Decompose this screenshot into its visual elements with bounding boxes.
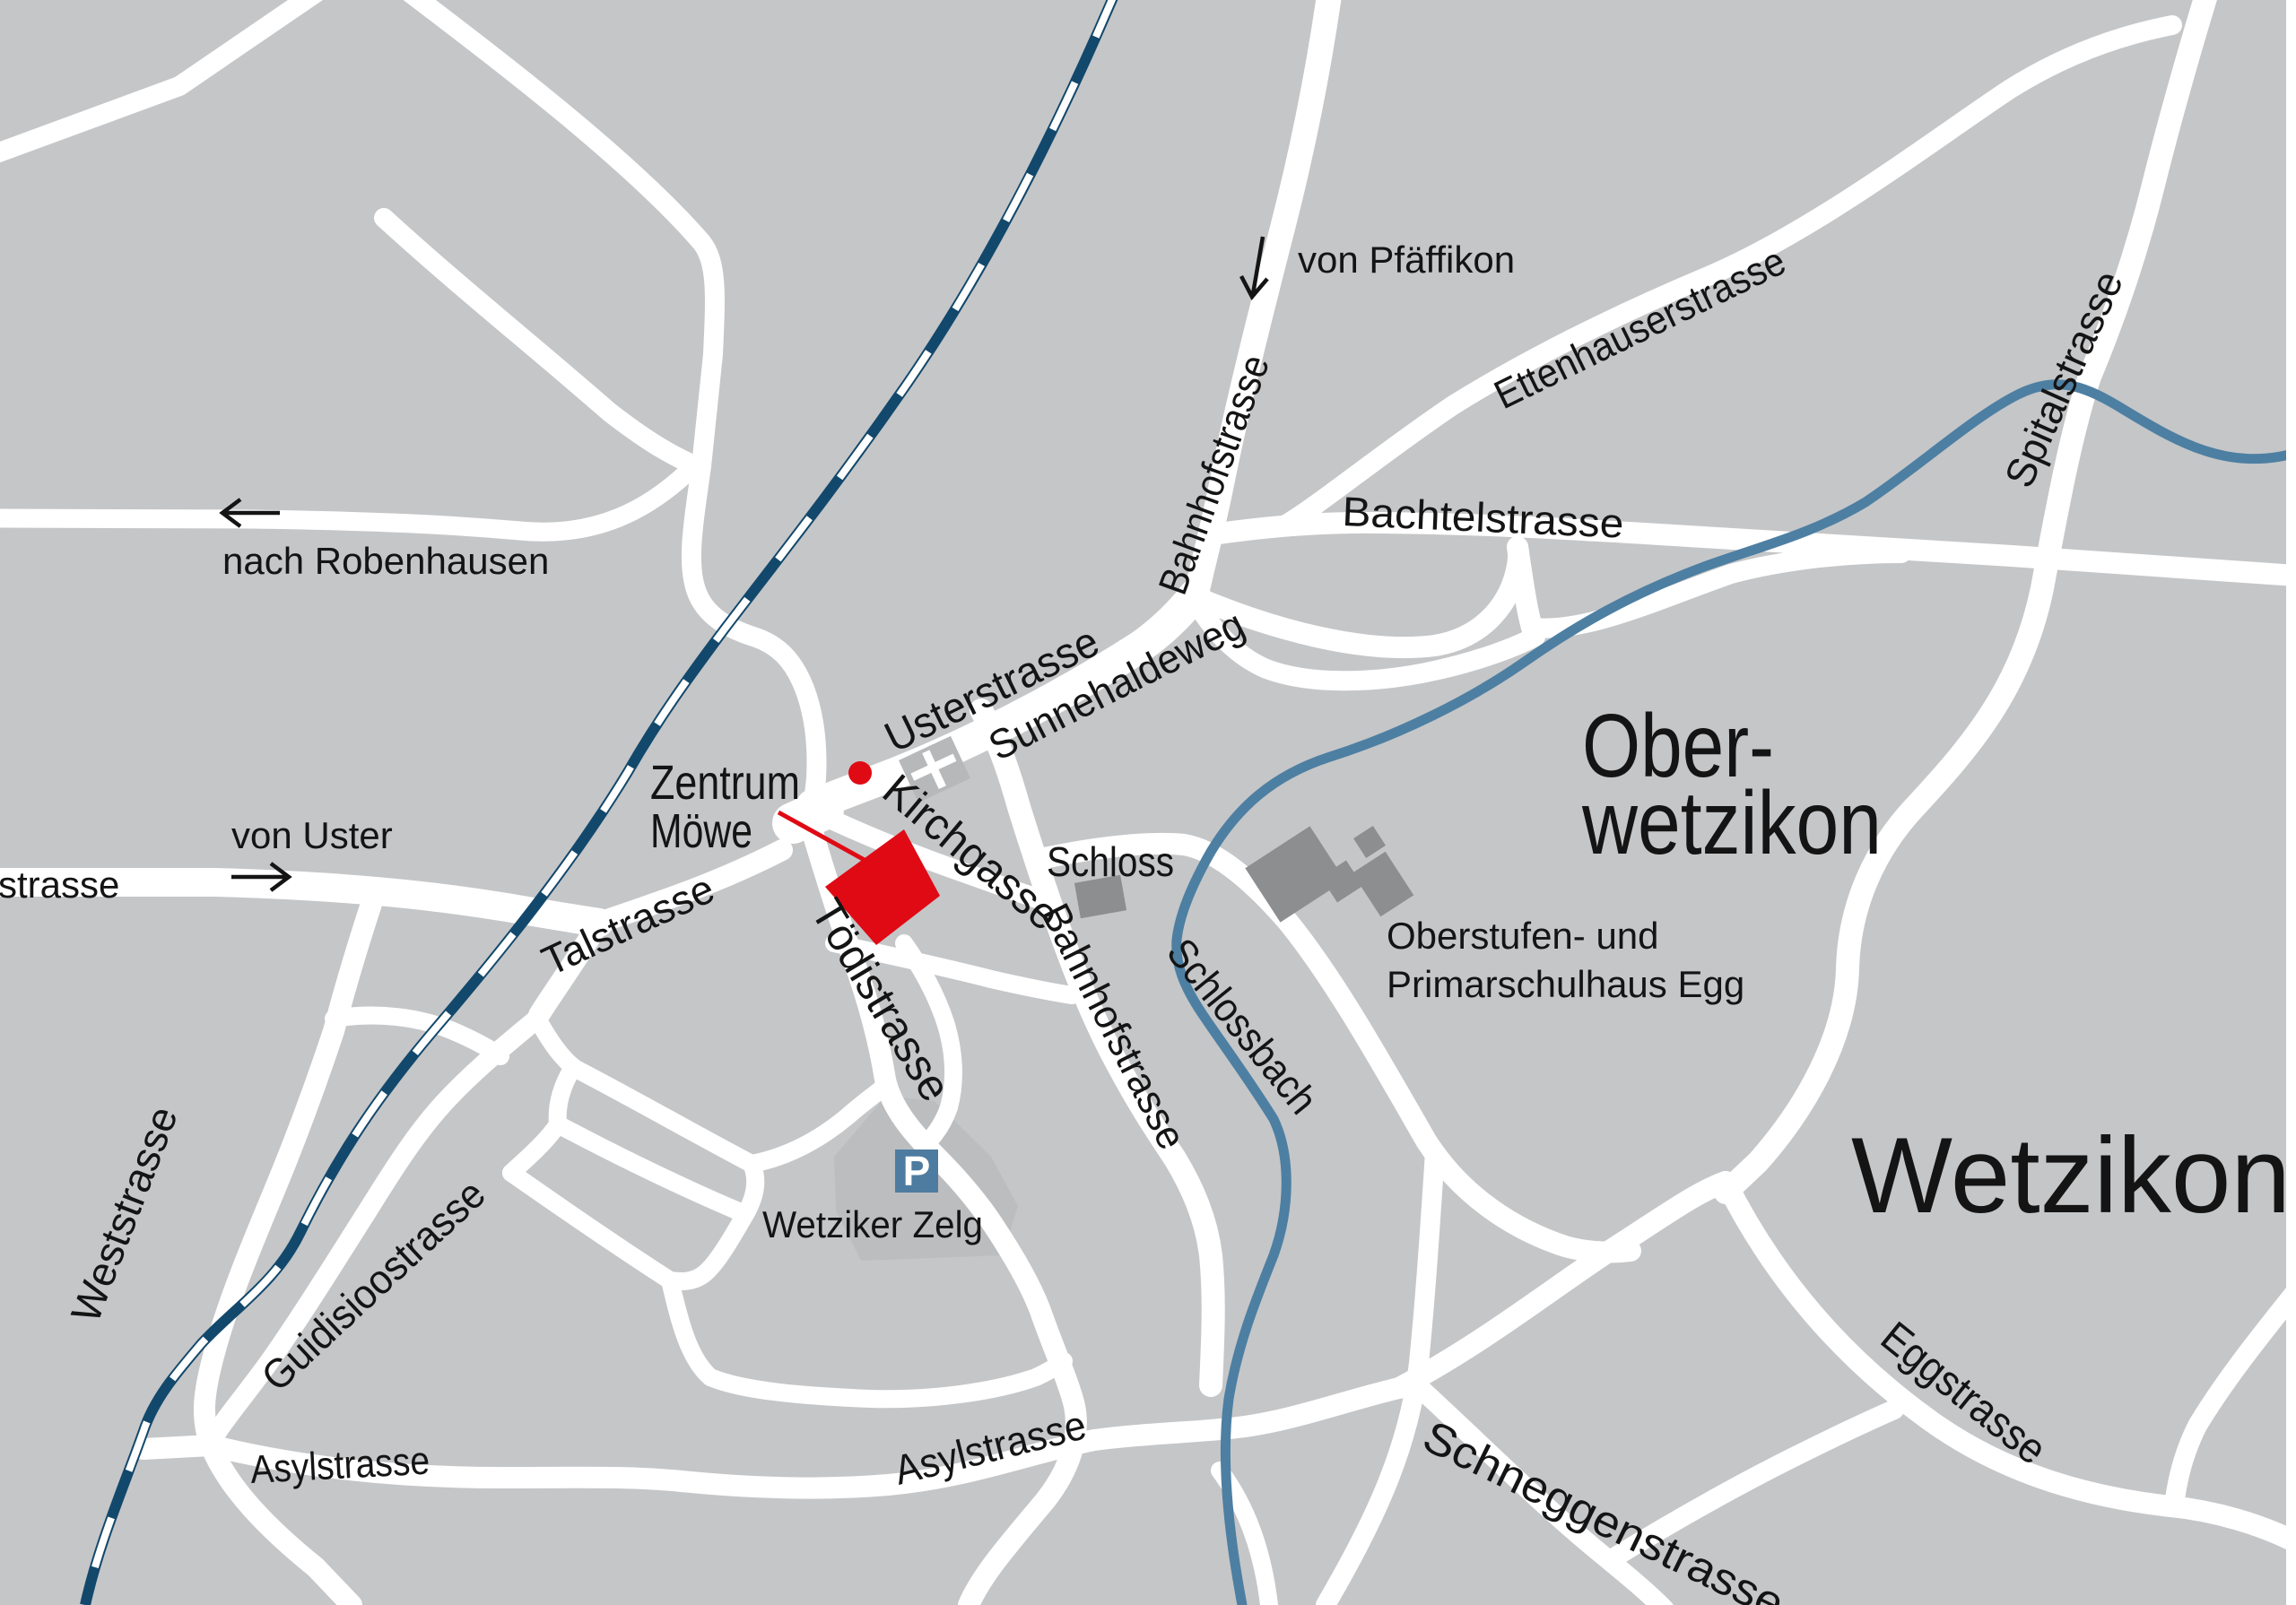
svg-text:nach Robenhausen: nach Robenhausen — [222, 540, 549, 582]
svg-text:Zentrum: Zentrum — [650, 756, 800, 810]
svg-text:wetzikon: wetzikon — [1581, 773, 1882, 873]
svg-text:Primarschulhaus Egg: Primarschulhaus Egg — [1387, 963, 1744, 1005]
svg-text:Möwe: Möwe — [650, 804, 752, 858]
svg-text:von Pfäffikon: von Pfäffikon — [1298, 239, 1515, 281]
svg-text:P: P — [903, 1148, 931, 1194]
svg-text:Schloss: Schloss — [1047, 838, 1174, 885]
svg-text:Asylstrasse: Asylstrasse — [249, 1439, 430, 1492]
svg-text:Oberstufen- und: Oberstufen- und — [1387, 915, 1659, 957]
svg-text:strasse: strasse — [0, 863, 119, 906]
svg-text:Wetziker Zelg: Wetziker Zelg — [762, 1203, 983, 1245]
svg-text:Wetzikon: Wetzikon — [1851, 1115, 2291, 1236]
svg-text:von Uster: von Uster — [231, 814, 393, 856]
